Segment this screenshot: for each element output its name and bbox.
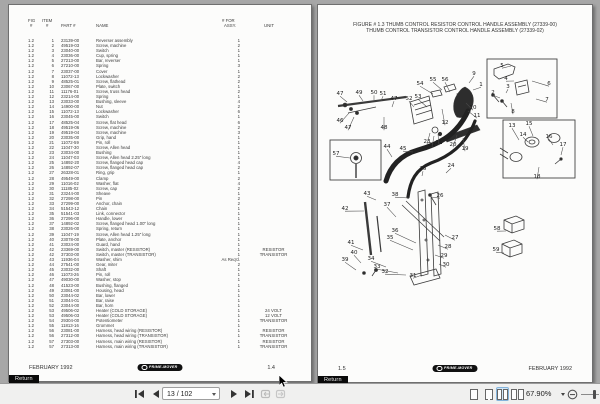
callout-number: 45 <box>400 146 407 152</box>
callout-number: 29 <box>441 253 448 259</box>
zoom-out-button[interactable] <box>567 389 578 400</box>
callout-number: 57 <box>333 151 340 157</box>
callout-number: 3 <box>506 84 510 90</box>
callout-number: 34 <box>368 256 375 262</box>
callout-number: 41 <box>348 240 355 246</box>
right-page-footer: 1.5 PRIME-MOVER FEBRUARY 1992 <box>318 366 592 375</box>
footer-page-number: 1.4 <box>267 365 275 371</box>
callout-number: 7 <box>545 97 549 103</box>
exploded-view-diagram: 1234567891011121314151617181920212223242… <box>318 45 592 355</box>
parts-table-rows: 1.2123139-00Reverser assembly11.2249519-… <box>28 38 307 349</box>
callout-number: 32 <box>382 269 389 275</box>
callout-number: 31 <box>410 273 417 279</box>
table-cell: Harness, main wiring (TRANSISTOR) <box>96 344 216 349</box>
prime-mover-logo: PRIME-MOVER <box>432 365 477 372</box>
table-cell: 1.2 <box>28 344 41 349</box>
zoom-slider-handle[interactable] <box>593 390 596 399</box>
callout-number: 35 <box>387 235 394 241</box>
callout-leader-line <box>354 255 361 263</box>
callout-number: 42 <box>342 206 349 212</box>
callout-number: 43 <box>364 191 371 197</box>
callout-number: 19 <box>462 146 469 152</box>
callout-leader-line <box>345 262 356 270</box>
callout-number: 49 <box>356 90 363 96</box>
callout-number: 10 <box>470 105 477 111</box>
callout-leader-line <box>433 82 442 90</box>
callout-number: 39 <box>342 257 349 263</box>
callout-number: 9 <box>472 71 476 77</box>
callout-number: 48 <box>381 125 388 131</box>
two-page-icon-right <box>503 389 508 400</box>
previous-view-button[interactable] <box>260 389 272 399</box>
callout-number: 46 <box>337 118 344 124</box>
callout-number: 40 <box>351 250 358 256</box>
parts-list-page: FIG ITEM # # PART # NAME # FOR ASSY. UNI… <box>8 4 312 382</box>
next-view-button[interactable] <box>275 389 287 399</box>
last-page-button[interactable] <box>243 389 255 399</box>
callout-number: 27 <box>452 235 459 241</box>
callout-number: 16 <box>546 134 553 140</box>
callout-number: 59 <box>493 247 500 253</box>
callout-number: 53 <box>415 94 422 100</box>
next-page-button[interactable] <box>228 389 240 399</box>
left-page-footer: FEBRUARY 1992 PRIME-MOVER 1.4 <box>9 365 311 374</box>
callout-number: 6 <box>547 81 551 87</box>
callout-number: 54 <box>417 81 424 87</box>
callout-leader-line <box>359 95 363 101</box>
callout-number: 11 <box>474 113 481 119</box>
callout-number: 30 <box>443 262 450 268</box>
figure-page: FIGURE # 1.3 THUMB CONTROL RESISTOR CONT… <box>317 4 593 383</box>
callout-number: 24 <box>448 163 455 169</box>
two-page-scroll-icon-left <box>511 389 517 400</box>
callout-number: 28 <box>445 244 452 250</box>
callout-leader-line <box>512 128 519 140</box>
page-number-value: 13 / 102 <box>167 391 192 398</box>
logo-text: PRIME-MOVER <box>444 365 473 372</box>
logo-ring-icon <box>141 365 147 371</box>
col-header-unit: UNIT <box>264 23 274 28</box>
continuous-scroll-view-button[interactable] <box>482 387 495 401</box>
callout-number: 47 <box>391 96 398 102</box>
callout-leader-line <box>387 207 396 217</box>
callout-number: 55 <box>430 77 437 83</box>
callout-leader-line <box>340 96 347 102</box>
callout-number: 23 <box>424 139 431 145</box>
first-page-button[interactable] <box>134 389 146 399</box>
callout-number: 37 <box>384 202 391 208</box>
page-number-input[interactable]: 13 / 102 <box>162 387 220 400</box>
zoom-slider-track[interactable] <box>581 394 599 396</box>
callout-number: 4 <box>504 76 508 82</box>
callout-leader-line <box>561 147 563 155</box>
continuous-scroll-icon <box>485 389 493 400</box>
col-header-part: PART # <box>61 23 76 28</box>
single-page-icon <box>470 389 478 400</box>
callout-number: 18 <box>534 174 541 180</box>
zoom-dropdown-caret-icon[interactable] <box>561 393 565 396</box>
callout-leader-line <box>529 126 533 136</box>
logo-text: PRIME-MOVER <box>149 364 178 371</box>
callout-number: 44 <box>384 144 391 150</box>
footer-date: FEBRUARY 1992 <box>29 365 73 371</box>
table-cell: 1 <box>216 344 240 349</box>
callout-number: 56 <box>442 77 449 83</box>
callout-leader-line <box>469 76 474 83</box>
callout-number: 38 <box>392 192 399 198</box>
table-row: 1.25727313-00Harness, main wiring (TRANS… <box>28 344 307 349</box>
mouse-cursor <box>279 375 288 388</box>
callout-number: 1 <box>479 82 483 88</box>
callout-number: 2 <box>491 90 495 96</box>
callout-number: 52 <box>406 96 413 102</box>
figure-title: FIGURE # 1.3 THUMB CONTROL RESISTOR CONT… <box>322 22 588 34</box>
callout-number: 58 <box>494 226 501 232</box>
footer-date: FEBRUARY 1992 <box>528 366 572 372</box>
callout-number: 17 <box>560 142 567 148</box>
two-page-scroll-icon-right <box>518 389 524 400</box>
previous-page-button[interactable] <box>150 389 162 399</box>
callout-number: 21 <box>436 140 443 146</box>
two-page-icon-left <box>497 389 502 400</box>
col-header-item: # <box>46 23 48 28</box>
logo-ring-icon <box>436 366 442 372</box>
callout-leader-line <box>395 233 416 243</box>
callout-number: 15 <box>526 121 533 127</box>
col-header-qty: ASSY. <box>224 23 236 28</box>
footer-page-number: 1.5 <box>338 366 346 372</box>
zoom-level-value[interactable]: 67.90% <box>526 389 551 398</box>
callout-number: 36 <box>392 228 399 234</box>
callout-number: 20 <box>450 142 457 148</box>
callout-number: 51 <box>380 91 387 97</box>
callout-number: 5 <box>500 63 504 69</box>
callout-number: 12 <box>442 120 449 126</box>
table-cell: 27313-00 <box>61 344 96 349</box>
callout-number: 47 <box>337 91 344 97</box>
single-page-view-button[interactable] <box>467 387 480 401</box>
callout-number: 47 <box>345 125 352 131</box>
figure-title-line2: THUMB CONTROL TRANSISTOR CONTROL HANDLE … <box>322 28 588 34</box>
callout-number: 8 <box>511 109 515 115</box>
callout-number: 50 <box>371 90 378 96</box>
callout-leader-line <box>420 86 433 94</box>
two-page-scroll-view-button[interactable] <box>511 387 524 401</box>
col-header-name: NAME <box>96 23 108 28</box>
table-cell: TRANSISTOR <box>240 344 307 349</box>
col-header-fig: # <box>30 23 32 28</box>
callout-number: 26 <box>437 193 444 199</box>
callout-number: 13 <box>509 123 516 129</box>
callout-leader-line <box>387 149 392 157</box>
table-cell: 57 <box>41 344 54 349</box>
pdf-viewer-toolbar: 13 / 102 67.90% <box>0 383 600 404</box>
callout-number: 14 <box>520 132 527 138</box>
callout-number: 25 <box>420 166 427 172</box>
prime-mover-logo: PRIME-MOVER <box>137 364 182 371</box>
callout-leader-line <box>390 240 413 250</box>
two-page-view-button[interactable] <box>496 387 509 401</box>
callout-leader-line <box>392 101 394 107</box>
callout-leader-line <box>409 101 414 107</box>
page-dropdown-caret-icon <box>212 393 216 396</box>
